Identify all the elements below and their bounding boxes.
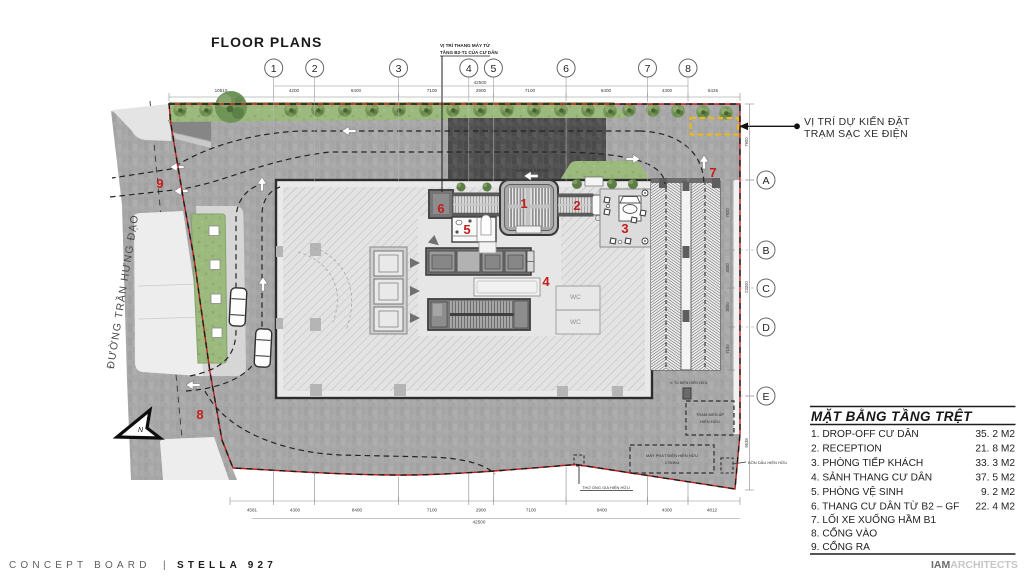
svg-text:7100: 7100 [526, 508, 537, 513]
svg-text:VỊ TRÍ THANG MÁY TỪ: VỊ TRÍ THANG MÁY TỪ [440, 41, 490, 48]
svg-text:22200: 22200 [744, 281, 749, 293]
svg-text:A: A [762, 175, 769, 187]
svg-text:2900: 2900 [476, 508, 487, 513]
svg-text:4812: 4812 [707, 508, 718, 513]
svg-text:IAMARCHITECTS: IAMARCHITECTS [931, 559, 1018, 571]
svg-text:8: 8 [196, 407, 203, 422]
svg-text:3000: 3000 [725, 263, 730, 273]
svg-text:B: B [762, 245, 769, 257]
svg-text:4200: 4200 [289, 88, 300, 93]
svg-text:FLOOR PLANS: FLOOR PLANS [211, 34, 322, 50]
svg-text:E: E [762, 391, 769, 403]
svg-text:6. THANG CƯ DÂN TỪ B2 – GF: 6. THANG CƯ DÂN TỪ B2 – GF [811, 500, 959, 513]
svg-text:6: 6 [563, 63, 569, 75]
svg-text:TRẠM SẠC XE ĐIỆN: TRẠM SẠC XE ĐIỆN [804, 127, 908, 140]
svg-text:2. RECEPTION: 2. RECEPTION [811, 444, 882, 455]
svg-text:2900: 2900 [476, 88, 487, 93]
svg-text:8400: 8400 [352, 508, 363, 513]
svg-text:8400: 8400 [597, 508, 608, 513]
svg-text:4300: 4300 [662, 88, 673, 93]
svg-text:VỊ TRÍ DỰ KIẾN ĐẶT: VỊ TRÍ DỰ KIẾN ĐẶT [804, 115, 910, 128]
svg-text:1750Kw: 1750Kw [665, 460, 680, 465]
svg-text:7150: 7150 [725, 344, 730, 354]
svg-text:C: C [762, 283, 770, 295]
svg-text:7: 7 [709, 165, 716, 180]
svg-text:42500: 42500 [474, 80, 487, 85]
svg-text:21. 8 M2: 21. 8 M2 [975, 444, 1015, 455]
svg-text:D: D [762, 322, 770, 334]
svg-text:33. 3 M2: 33. 3 M2 [975, 458, 1015, 469]
svg-text:8. CỔNG VÀO: 8. CỔNG VÀO [811, 527, 877, 540]
svg-text:37. 5 M2: 37. 5 M2 [975, 473, 1015, 484]
svg-text:4. SẢNH THANG CƯ DÂN: 4. SẢNH THANG CƯ DÂN [811, 471, 932, 484]
svg-text:V. TỦ ĐIỆN HIỆN HỮU: V. TỦ ĐIỆN HIỆN HỮU [670, 380, 708, 385]
svg-text:4300: 4300 [290, 508, 301, 513]
svg-text:9: 9 [156, 176, 163, 191]
svg-text:TRẠM BIẾN ÁP: TRẠM BIẾN ÁP [696, 412, 725, 417]
svg-text:2: 2 [312, 63, 318, 75]
svg-text:8400: 8400 [601, 88, 612, 93]
svg-text:5425: 5425 [708, 88, 719, 93]
svg-text:6: 6 [437, 201, 444, 216]
svg-text:MÁY PHÁT ĐIỆN HIỆN HỮU: MÁY PHÁT ĐIỆN HIỆN HỮU [646, 453, 698, 458]
svg-text:WC: WC [570, 319, 581, 326]
svg-text:5: 5 [463, 222, 470, 237]
svg-text:9. CỔNG RA: 9. CỔNG RA [811, 540, 870, 553]
svg-text:9538: 9538 [744, 438, 749, 448]
svg-text:7920: 7920 [725, 208, 730, 218]
svg-text:4: 4 [466, 63, 472, 75]
svg-text:BỒN DẦU HIỆN HỮU: BỒN DẦU HIỆN HỮU [748, 460, 787, 465]
svg-text:8: 8 [685, 63, 691, 75]
svg-text:35. 2 M2: 35. 2 M2 [975, 429, 1015, 440]
svg-text:HIỆN HỮU: HIỆN HỮU [700, 419, 720, 424]
svg-text:1. DROP-OFF CƯ DÂN: 1. DROP-OFF CƯ DÂN [811, 427, 919, 440]
svg-text:8400: 8400 [351, 88, 362, 93]
svg-text:MẶT BẰNG TẦNG TRỆT: MẶT BẰNG TẦNG TRỆT [811, 409, 973, 424]
svg-text:SẢNH CĂN HỘ: SẢNH CĂN HỘ [516, 168, 549, 173]
svg-text:THỢ ỐNG GIA HIỆN HỮU: THỢ ỐNG GIA HIỆN HỮU [582, 485, 630, 490]
svg-text:TẦNG B2-T1 CỦA CƯ DÂN: TẦNG B2-T1 CỦA CƯ DÂN [440, 49, 498, 55]
svg-text:3: 3 [396, 63, 402, 75]
svg-text:|: | [163, 560, 170, 571]
svg-text:7100: 7100 [525, 88, 536, 93]
svg-text:9. 2 M2: 9. 2 M2 [981, 487, 1015, 498]
svg-text:7100: 7100 [427, 88, 438, 93]
svg-text:10510: 10510 [215, 88, 228, 93]
svg-text:3: 3 [621, 221, 628, 236]
svg-text:4: 4 [542, 274, 550, 289]
svg-text:4581: 4581 [247, 508, 258, 513]
svg-text:WC: WC [570, 294, 581, 301]
svg-text:7900: 7900 [744, 137, 749, 147]
svg-text:7: 7 [645, 63, 651, 75]
svg-text:1: 1 [520, 196, 527, 211]
svg-text:2: 2 [573, 198, 580, 213]
svg-text:5. PHÒNG VỆ SINH: 5. PHÒNG VỆ SINH [811, 485, 903, 498]
svg-text:3000: 3000 [725, 302, 730, 312]
svg-text:22. 4 M2: 22. 4 M2 [975, 502, 1015, 513]
svg-text:STELLA 927: STELLA 927 [177, 560, 277, 571]
svg-text:3. PHÒNG TIẾP KHÁCH: 3. PHÒNG TIẾP KHÁCH [811, 456, 923, 469]
svg-text:5: 5 [490, 63, 496, 75]
svg-text:1: 1 [271, 63, 277, 75]
svg-text:7100: 7100 [427, 508, 438, 513]
svg-text:CONCEPT BOARD: CONCEPT BOARD [9, 560, 151, 571]
svg-text:42500: 42500 [473, 520, 486, 525]
svg-text:7. LỐI XE XUỐNG HẦM B1: 7. LỐI XE XUỐNG HẦM B1 [811, 512, 936, 526]
svg-text:4300: 4300 [662, 508, 673, 513]
